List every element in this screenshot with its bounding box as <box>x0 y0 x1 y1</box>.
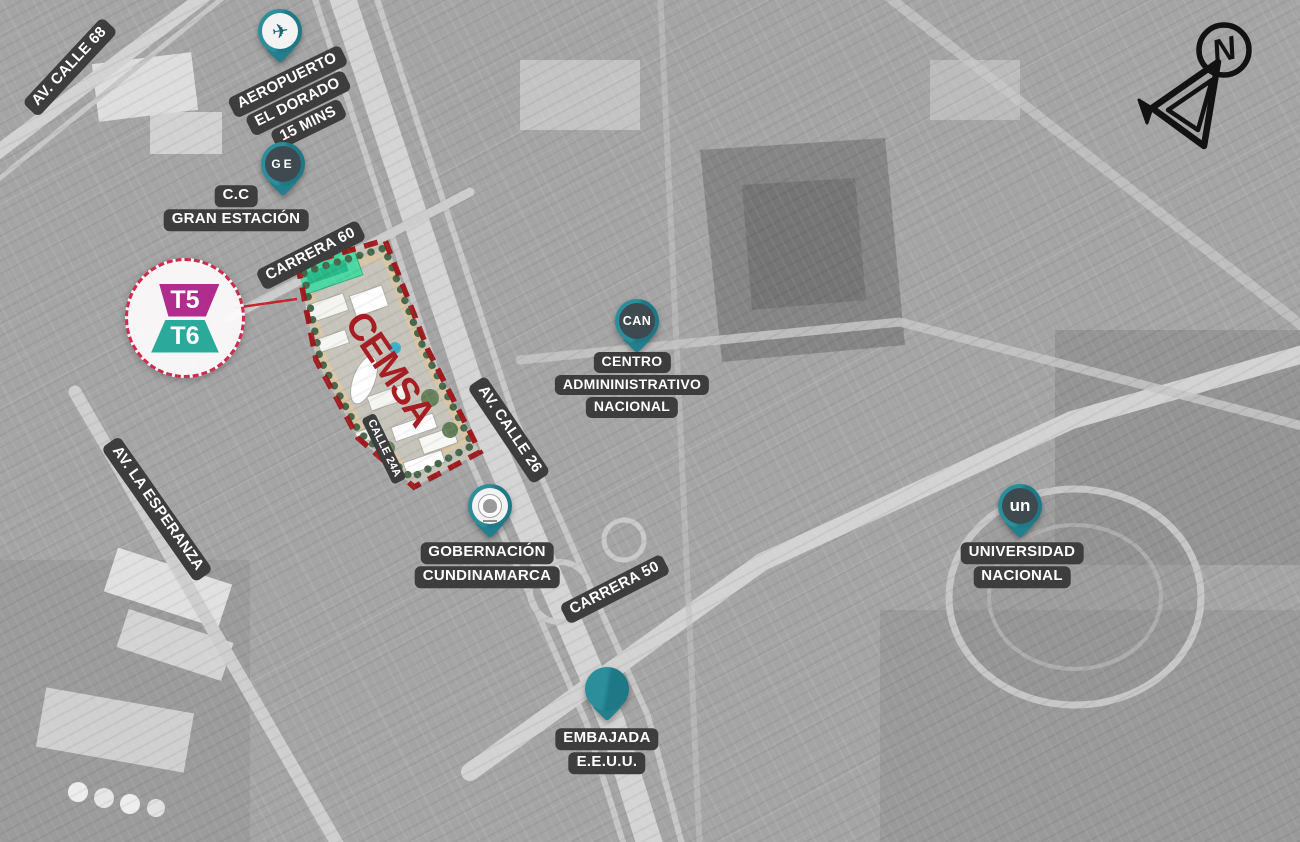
t5-flag: T5 <box>149 284 221 317</box>
label-line: E.E.U.U. <box>569 752 646 774</box>
pin-aeropuerto: ✈ <box>258 9 302 53</box>
pin-label-gobernacion: GOBERNACIÓN CUNDINAMARCA <box>415 542 560 588</box>
university-oval <box>949 489 1201 705</box>
label-line: GOBERNACIÓN <box>420 542 553 564</box>
t5-t6-badge: T5 T6 <box>125 258 245 378</box>
ge-logo-icon: GE <box>265 146 301 182</box>
t6-flag: T6 <box>149 320 221 353</box>
pin-gobernacion <box>468 484 512 528</box>
map-root: AV. CALLE 68 CARRERA 60 CALLE 24A AV. CA… <box>0 0 1300 842</box>
un-logo-icon: un <box>1002 488 1038 524</box>
pin-universidad: un <box>998 484 1042 528</box>
label-line: ADMININISTRATIVO <box>555 375 709 396</box>
satellite-map-background <box>0 0 1300 842</box>
label-line: CENTRO <box>594 352 671 373</box>
label-line: NACIONAL <box>586 397 678 418</box>
crest-icon <box>472 488 508 524</box>
label-line: UNIVERSIDAD <box>961 542 1084 564</box>
un-logo-text: un <box>1010 496 1031 516</box>
label-line: C.C <box>215 185 258 207</box>
pin-label-can: CENTRO ADMININISTRATIVO NACIONAL <box>555 352 709 418</box>
label-line: GRAN ESTACIÓN <box>164 209 309 231</box>
label-line: EMBAJADA <box>555 728 658 750</box>
can-logo-text: CAN <box>623 314 652 328</box>
airplane-icon: ✈ <box>262 13 298 49</box>
pin-label-embajada: EMBAJADA E.E.U.U. <box>555 728 658 774</box>
crest-emblem <box>478 494 502 518</box>
label-line: CUNDINAMARCA <box>415 566 560 588</box>
pin-embajada <box>585 667 629 711</box>
pin-gran-estacion: GE <box>261 142 305 186</box>
north-compass: N <box>1130 0 1300 170</box>
pin-can: CAN <box>615 299 659 343</box>
airplane-glyph: ✈ <box>270 17 290 44</box>
north-arrow-icon: N <box>1130 0 1300 170</box>
ge-logo-text: GE <box>271 157 294 171</box>
pin-body <box>585 667 629 711</box>
can-logo-icon: CAN <box>619 303 655 339</box>
label-line: NACIONAL <box>973 566 1071 588</box>
pin-label-universidad: UNIVERSIDAD NACIONAL <box>961 542 1084 588</box>
